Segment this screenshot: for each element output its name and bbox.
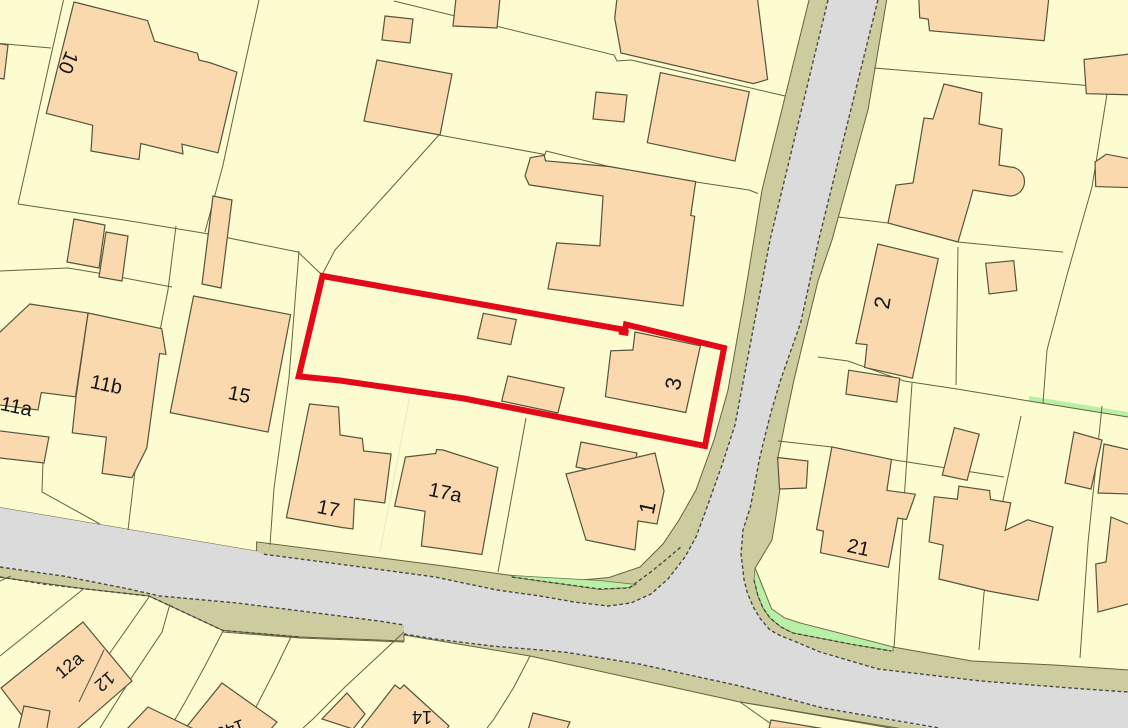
- svg-text:17: 17: [315, 496, 341, 522]
- svg-text:14: 14: [412, 707, 432, 727]
- svg-text:21: 21: [845, 535, 871, 561]
- svg-text:15: 15: [226, 382, 252, 408]
